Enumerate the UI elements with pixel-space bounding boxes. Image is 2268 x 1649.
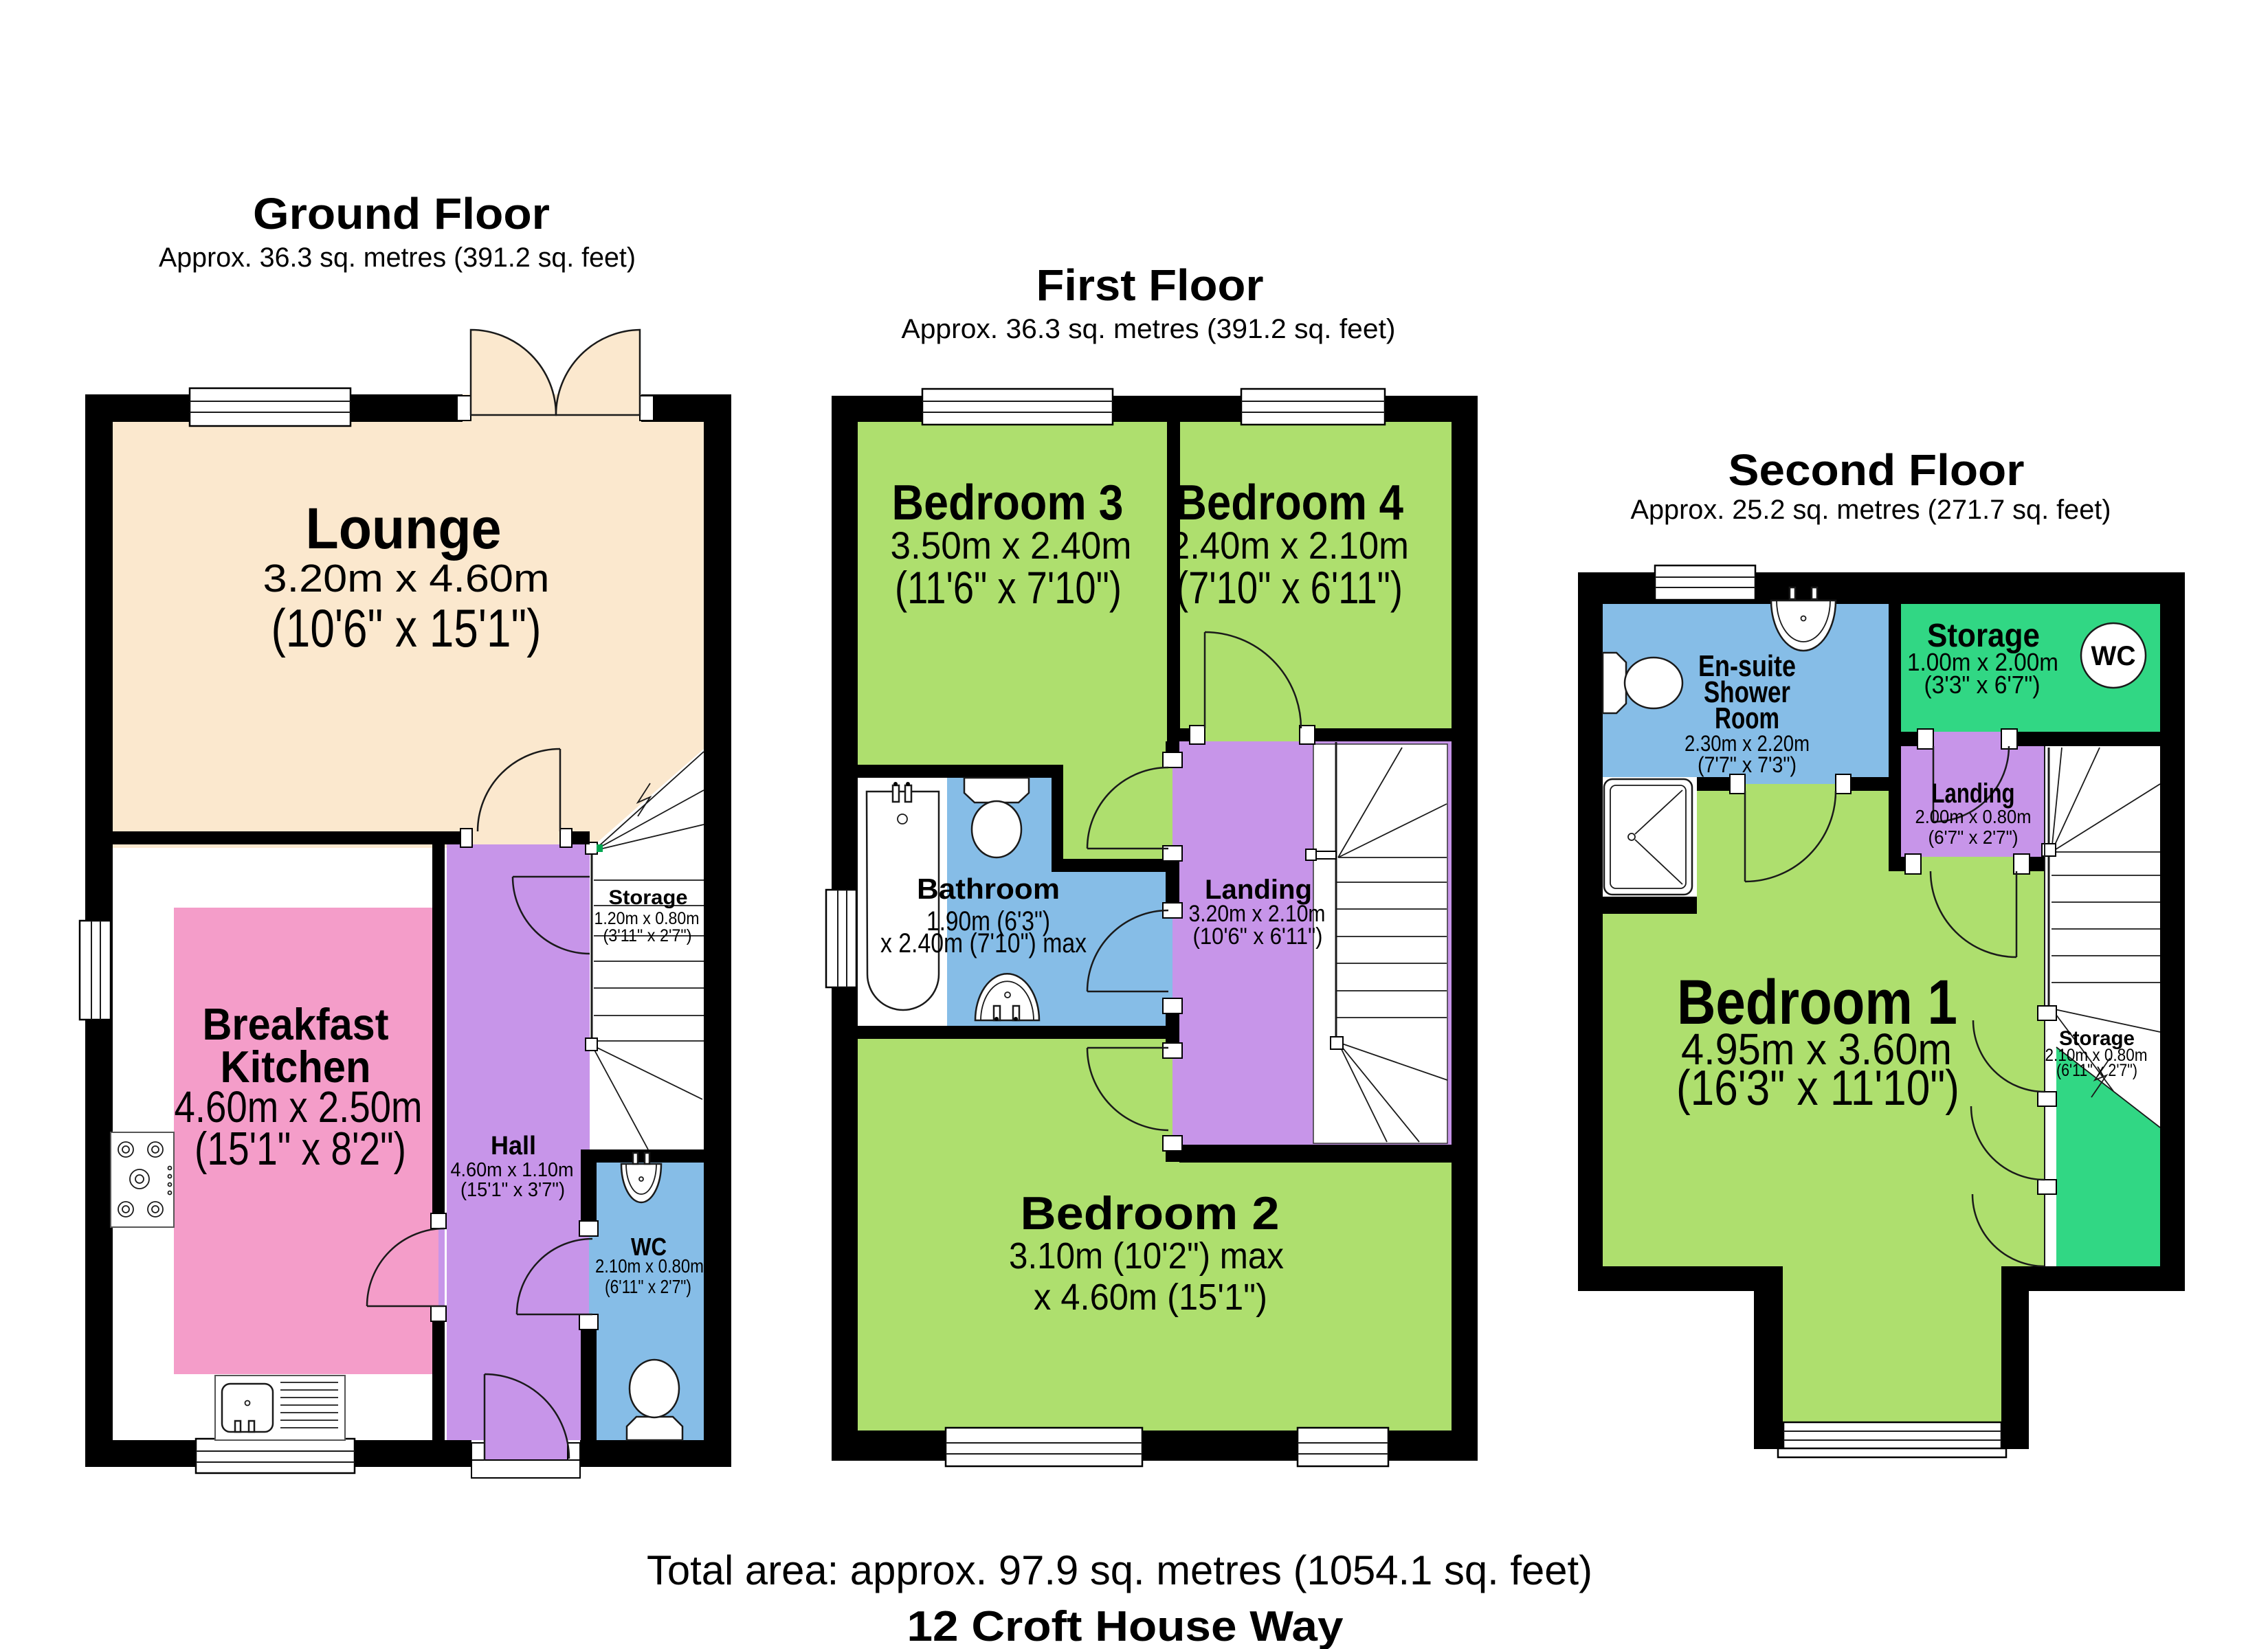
svg-text:Storage: Storage xyxy=(609,886,688,909)
svg-text:4.60m x 1.10m: 4.60m x 1.10m xyxy=(451,1159,574,1181)
svg-text:Second Floor: Second Floor xyxy=(1728,445,2025,495)
svg-text:(7'10" x 6'11"): (7'10" x 6'11") xyxy=(1176,562,1403,613)
svg-text:WC: WC xyxy=(2091,641,2136,671)
svg-text:x 4.60m (15'1"): x 4.60m (15'1") xyxy=(1034,1277,1267,1318)
svg-text:Landing: Landing xyxy=(1932,778,2015,809)
svg-text:(6'11" x 2'7"): (6'11" x 2'7") xyxy=(605,1276,691,1297)
svg-text:3.20m x 4.60m: 3.20m x 4.60m xyxy=(263,557,550,601)
svg-text:Bathroom: Bathroom xyxy=(917,873,1060,905)
svg-text:(10'6" x 6'11"): (10'6" x 6'11") xyxy=(1193,923,1323,950)
svg-text:3.10m (10'2") max: 3.10m (10'2") max xyxy=(1009,1235,1284,1277)
svg-text:Approx. 25.2 sq. metres (271.7: Approx. 25.2 sq. metres (271.7 sq. feet) xyxy=(1631,495,2111,525)
svg-text:2.10m x 0.80m: 2.10m x 0.80m xyxy=(595,1255,704,1277)
svg-text:Bedroom 4: Bedroom 4 xyxy=(1175,475,1403,530)
svg-text:(11'6" x 7'10"): (11'6" x 7'10") xyxy=(895,562,1122,613)
svg-text:Total area: approx. 97.9 sq. m: Total area: approx. 97.9 sq. metres (105… xyxy=(647,1547,1592,1593)
svg-text:Ground Floor: Ground Floor xyxy=(253,189,550,238)
svg-text:Approx. 36.3 sq. metres (391.2: Approx. 36.3 sq. metres (391.2 sq. feet) xyxy=(159,243,636,273)
svg-text:12 Croft House Way: 12 Croft House Way xyxy=(907,1603,1344,1649)
svg-text:x 2.40m (7'10") max: x 2.40m (7'10") max xyxy=(880,928,1087,958)
svg-text:Bedroom 3: Bedroom 3 xyxy=(892,475,1124,530)
svg-text:(3'11" x 2'7"): (3'11" x 2'7") xyxy=(603,926,692,945)
svg-text:2.00m x 0.80m: 2.00m x 0.80m xyxy=(1915,806,2032,827)
svg-text:Hall: Hall xyxy=(491,1132,536,1160)
svg-text:Approx. 36.3 sq. metres (391.2: Approx. 36.3 sq. metres (391.2 sq. feet) xyxy=(902,314,1396,344)
svg-text:First Floor: First Floor xyxy=(1036,260,1264,310)
svg-text:Lounge: Lounge xyxy=(306,496,502,561)
svg-text:(6'7" x 2'7"): (6'7" x 2'7") xyxy=(1928,827,2019,848)
svg-text:(6'11" x 2'7"): (6'11" x 2'7") xyxy=(2056,1061,2137,1080)
svg-text:2.40m x 2.10m: 2.40m x 2.10m xyxy=(1170,524,1409,567)
svg-text:(10'6" x 15'1"): (10'6" x 15'1") xyxy=(271,598,542,658)
svg-text:Bedroom 2: Bedroom 2 xyxy=(1021,1187,1280,1239)
svg-text:(7'7" x 7'3"): (7'7" x 7'3") xyxy=(1698,752,1797,777)
svg-text:(15'1" x 3'7"): (15'1" x 3'7") xyxy=(460,1179,565,1201)
svg-text:(16'3" x 11'10"): (16'3" x 11'10") xyxy=(1676,1061,1959,1116)
svg-text:3.50m x 2.40m: 3.50m x 2.40m xyxy=(891,524,1132,567)
svg-text:(3'3" x 6'7"): (3'3" x 6'7") xyxy=(1924,671,2041,699)
svg-text:Room: Room xyxy=(1715,702,1779,735)
svg-text:(15'1" x 8'2"): (15'1" x 8'2") xyxy=(194,1123,406,1175)
svg-text:1.20m x 0.80m: 1.20m x 0.80m xyxy=(594,909,700,928)
